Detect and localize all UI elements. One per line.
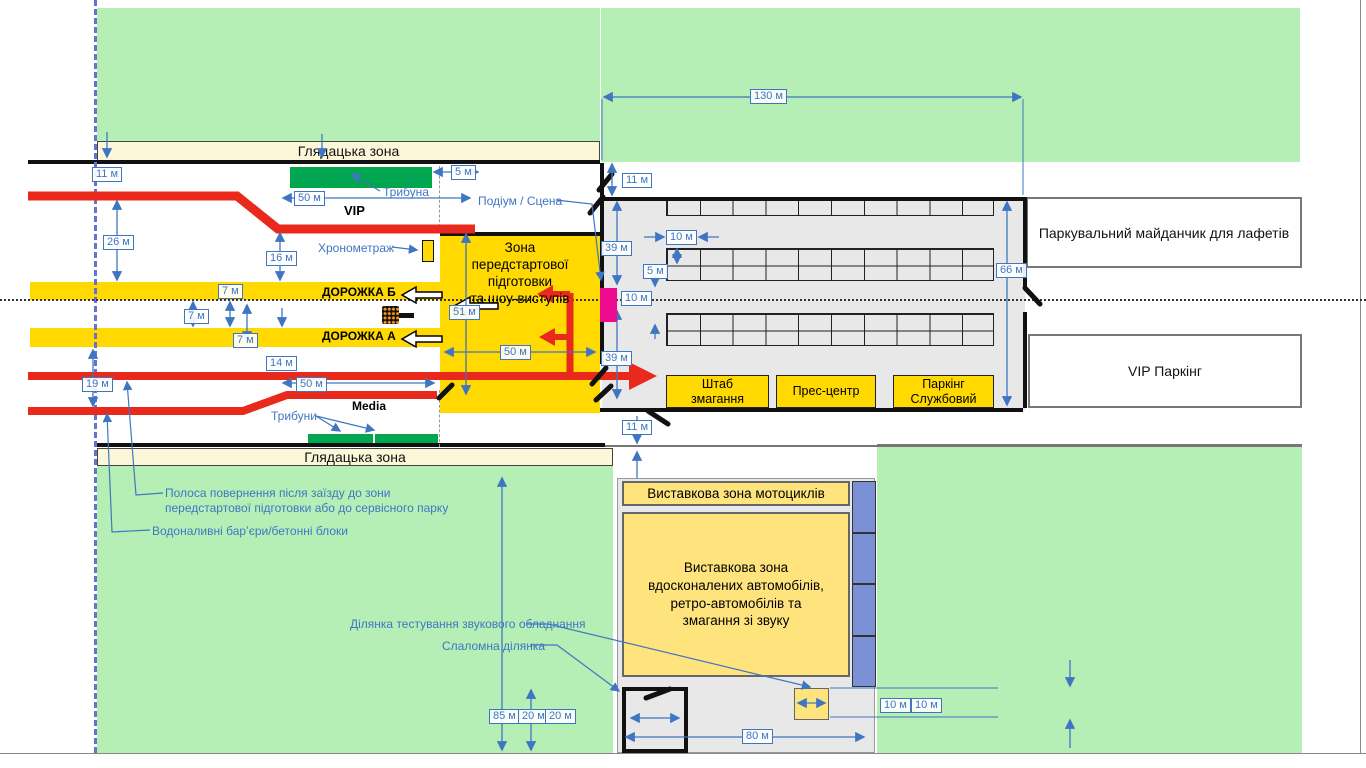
dimension-label: 16 м bbox=[266, 251, 297, 266]
dimension-label: 130 м bbox=[750, 89, 787, 104]
return-lane-note: Полоса повернення після заїзду до зони п… bbox=[165, 486, 448, 516]
podium-stage bbox=[600, 288, 617, 322]
dimension-label: 39 м bbox=[601, 241, 632, 256]
podium-note: Подіум / Сцена bbox=[478, 194, 562, 209]
dimension-label: 5 м bbox=[643, 264, 668, 279]
start-lights-arm bbox=[399, 313, 414, 318]
dimension-label: 50 м bbox=[500, 345, 531, 360]
tribuna-note: Трибуна bbox=[383, 185, 429, 200]
sound-test-note: Ділянка тестування звукового обладнання bbox=[350, 617, 586, 632]
dimension-label: 11 м bbox=[622, 420, 652, 435]
dimension-label: 10 м bbox=[880, 698, 911, 713]
dimension-label: 39 м bbox=[601, 351, 632, 366]
dimension-label: 7 м bbox=[218, 284, 243, 299]
reference-lines bbox=[602, 99, 1023, 717]
dimension-label: 66 м bbox=[996, 263, 1027, 278]
dimension-label: 11 м bbox=[92, 167, 122, 182]
dimension-label: 10 м bbox=[911, 698, 942, 713]
chronometry-box bbox=[422, 240, 434, 262]
dimension-label: 80 м bbox=[742, 729, 773, 744]
media-label: Media bbox=[352, 399, 386, 413]
prestart-zone-label: Зона передстартової підготовки та шоу-ви… bbox=[442, 240, 598, 308]
dimension-label: 51 м bbox=[449, 305, 480, 320]
dimension-label: 50 м bbox=[294, 191, 325, 206]
dimension-label: 19 м bbox=[82, 377, 113, 392]
dimension-label: 50 м bbox=[296, 377, 327, 392]
start-lights-icon bbox=[382, 306, 399, 324]
dimension-label: 85 м bbox=[489, 709, 520, 724]
track-a-label: ДОРОЖКА А bbox=[322, 329, 396, 343]
tribuny-note: Трибуни bbox=[271, 409, 317, 424]
dimension-label: 10 м bbox=[666, 230, 697, 245]
track-b-label: ДОРОЖКА Б bbox=[322, 285, 396, 299]
water-barriers-note: Водоналивні бар’єри/бетонні блоки bbox=[152, 524, 348, 539]
site-plan: Глядацька зона Глядацька зона Зона перед… bbox=[0, 0, 1366, 768]
dimension-label: 26 м bbox=[103, 235, 134, 250]
vip-label: VIP bbox=[344, 203, 365, 218]
chrono-note: Хронометраж bbox=[318, 241, 394, 256]
slalom-note: Слаломна ділянка bbox=[442, 639, 545, 654]
dimension-label: 7 м bbox=[233, 333, 258, 348]
dimension-label: 5 м bbox=[451, 165, 476, 180]
dimension-label: 7 м bbox=[184, 309, 209, 324]
dimension-label: 11 м bbox=[622, 173, 652, 188]
dimension-label: 10 м bbox=[621, 291, 652, 306]
dimension-label: 20 м bbox=[545, 709, 576, 724]
plan-linework bbox=[0, 0, 1366, 768]
dimension-label: 14 м bbox=[266, 356, 297, 371]
